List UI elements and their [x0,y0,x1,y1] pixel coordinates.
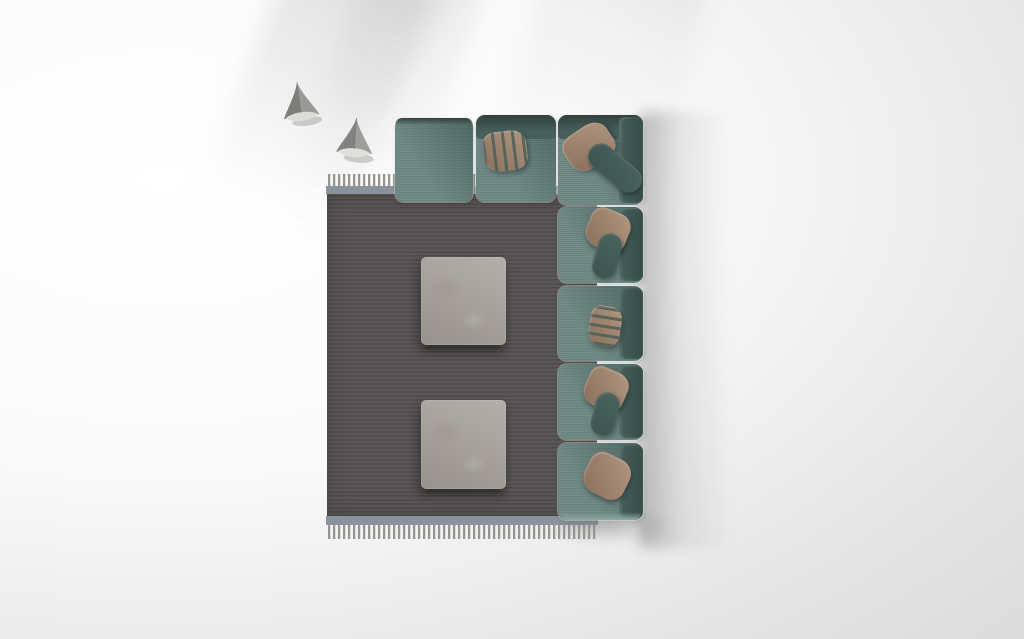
sofa-front-edge-highlight [560,512,641,520]
coffee-table-2 [421,400,506,489]
origami-decor-icon [329,114,380,165]
coffee-table-1 [421,257,506,345]
sofa-seat-module [558,443,643,520]
throw-pillow-striped [481,128,530,173]
sofa-seat-module [558,364,643,440]
sofa-module-top-middle [476,115,556,202]
render-canvas [0,0,1024,639]
sofa-module-chaise [395,118,473,202]
sofa-back-cushion [619,288,643,359]
sofa-back-top-edge [395,118,473,125]
rug-border-band-bottom [326,516,598,525]
origami-decor-icon [329,114,380,165]
rug-fringe-bottom [328,525,596,539]
sofa-seat-module [558,207,643,283]
origami-decor-icon [273,77,327,131]
sofa-seat-module [558,286,643,361]
sofa-module-corner [558,115,643,205]
sofa-cast-shadow [640,112,732,548]
origami-decor-icon [273,77,327,131]
